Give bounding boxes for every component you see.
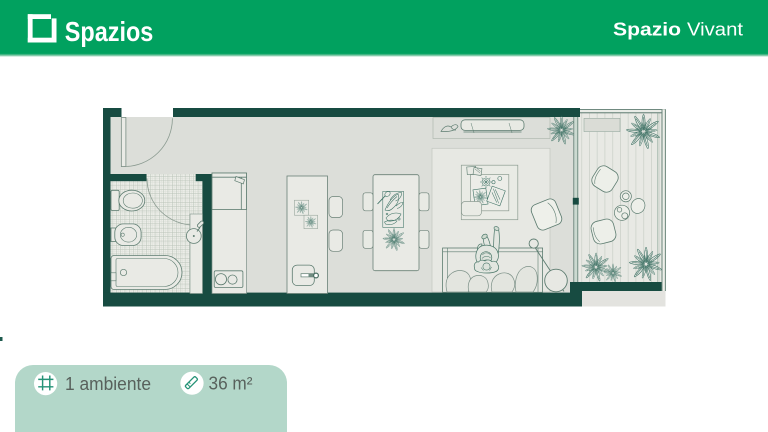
svg-text:36 m²: 36 m² xyxy=(209,374,253,394)
svg-text:Spazios: Spazios xyxy=(65,16,154,47)
svg-text:Vivant: Vivant xyxy=(687,18,743,39)
svg-text:Spazio: Spazio xyxy=(613,18,681,39)
svg-text:1 ambiente: 1 ambiente xyxy=(65,374,151,394)
